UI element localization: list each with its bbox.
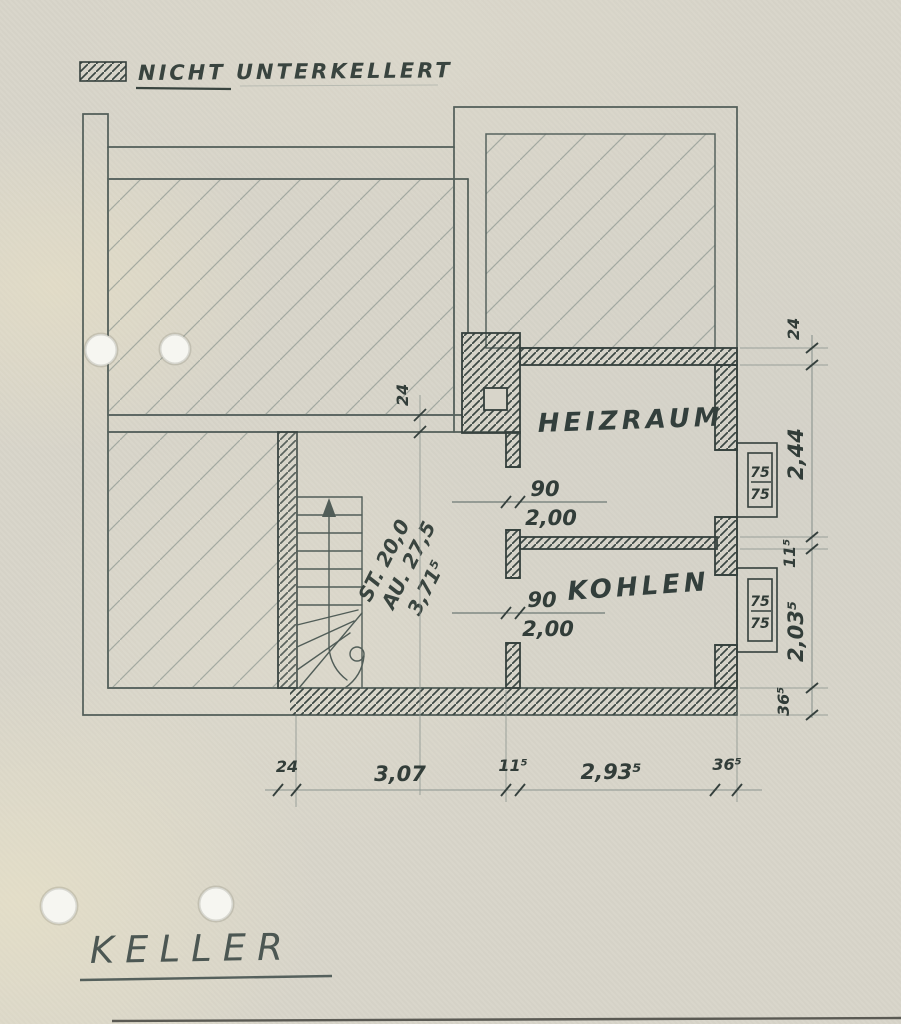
legend-label: NICHT UNTERKELLERT bbox=[138, 58, 453, 85]
window-lower-width: 75 bbox=[750, 594, 770, 610]
bottom-dim-365: 36⁵ bbox=[712, 755, 741, 774]
unexcavated-area-northwest bbox=[108, 179, 454, 415]
stair-wall-thickness: 24 bbox=[393, 384, 412, 406]
window-upper-height: 75 bbox=[750, 487, 770, 503]
chimney-flue-opening bbox=[484, 388, 507, 410]
punch-hole-bottom-right bbox=[199, 887, 233, 921]
right-dim-24: 24 bbox=[784, 318, 803, 340]
unexcavated-area-northeast bbox=[486, 134, 715, 348]
scanned-floor-plan-page: NICHT UNTERKELLERT bbox=[0, 0, 901, 1024]
unexcavated-area-southwest bbox=[108, 432, 278, 688]
legend-faint-rule bbox=[240, 85, 438, 86]
right-dim-2035: 2,03⁵ bbox=[784, 601, 808, 662]
east-wall-segment-3 bbox=[715, 645, 737, 688]
stair-direction-arrow bbox=[322, 498, 336, 517]
kohlen-door-width: 90 bbox=[527, 588, 556, 612]
legend: NICHT UNTERKELLERT bbox=[80, 58, 453, 89]
window-lower-height: 75 bbox=[750, 616, 770, 632]
bottom-dim-24: 24 bbox=[276, 757, 298, 776]
room-label-heizraum: HEIZRAUM bbox=[537, 403, 724, 439]
punch-hole-bottom-left bbox=[41, 888, 77, 924]
window-upper-width: 75 bbox=[750, 465, 770, 481]
heizraum-door-height: 2,00 bbox=[525, 506, 577, 530]
right-dim-244: 2,44 bbox=[784, 428, 808, 480]
stair-annotation: ST. 20,0 AU. 27,5 3,71⁵ bbox=[353, 506, 464, 628]
stair-walk-line-curve bbox=[329, 648, 347, 680]
punch-hole-top-right bbox=[160, 334, 190, 364]
heizraum-north-wall bbox=[520, 348, 737, 365]
window-upper: 75 75 bbox=[737, 443, 777, 517]
heizraum-kohlen-divider-wall bbox=[520, 537, 717, 549]
window-lower-outer-frame bbox=[737, 568, 777, 652]
drawing-title: KELLER bbox=[80, 925, 332, 980]
room-label-kohlen: KOHLEN bbox=[566, 567, 710, 607]
stair-west-wall bbox=[278, 432, 297, 688]
window-lower: 75 75 bbox=[737, 568, 777, 652]
hall-east-wall-segment-3 bbox=[506, 643, 520, 688]
hall-east-wall-segment-2 bbox=[506, 530, 520, 578]
legend-underline bbox=[136, 88, 231, 89]
chimney-block bbox=[462, 333, 520, 433]
east-wall-segment-2 bbox=[715, 517, 737, 575]
title-label: KELLER bbox=[89, 925, 294, 972]
bottom-dim-307: 3,07 bbox=[374, 762, 426, 786]
right-dimension-chain: 24 2,44 11⁵ 2,03⁵ 36⁵ bbox=[740, 318, 828, 720]
heizraum-door-width: 90 bbox=[530, 477, 559, 501]
door-dim-heizraum: 90 2,00 bbox=[452, 477, 607, 530]
scan-edge-line bbox=[112, 1018, 901, 1021]
right-dim-115: 11⁵ bbox=[780, 539, 799, 568]
legend-hatch-swatch bbox=[80, 62, 126, 81]
punch-hole-top-left bbox=[85, 334, 117, 366]
title-underline bbox=[80, 976, 332, 980]
hall-east-wall-segment-1 bbox=[506, 432, 520, 467]
bottom-dim-2935: 2,93⁵ bbox=[580, 760, 641, 784]
kohlen-door-height: 2,00 bbox=[522, 617, 574, 641]
south-wall-hatch bbox=[290, 688, 737, 715]
right-dim-365: 36⁵ bbox=[774, 687, 793, 716]
floor-plan-svg: NICHT UNTERKELLERT bbox=[0, 0, 901, 1024]
bottom-dim-115: 11⁵ bbox=[498, 756, 527, 775]
